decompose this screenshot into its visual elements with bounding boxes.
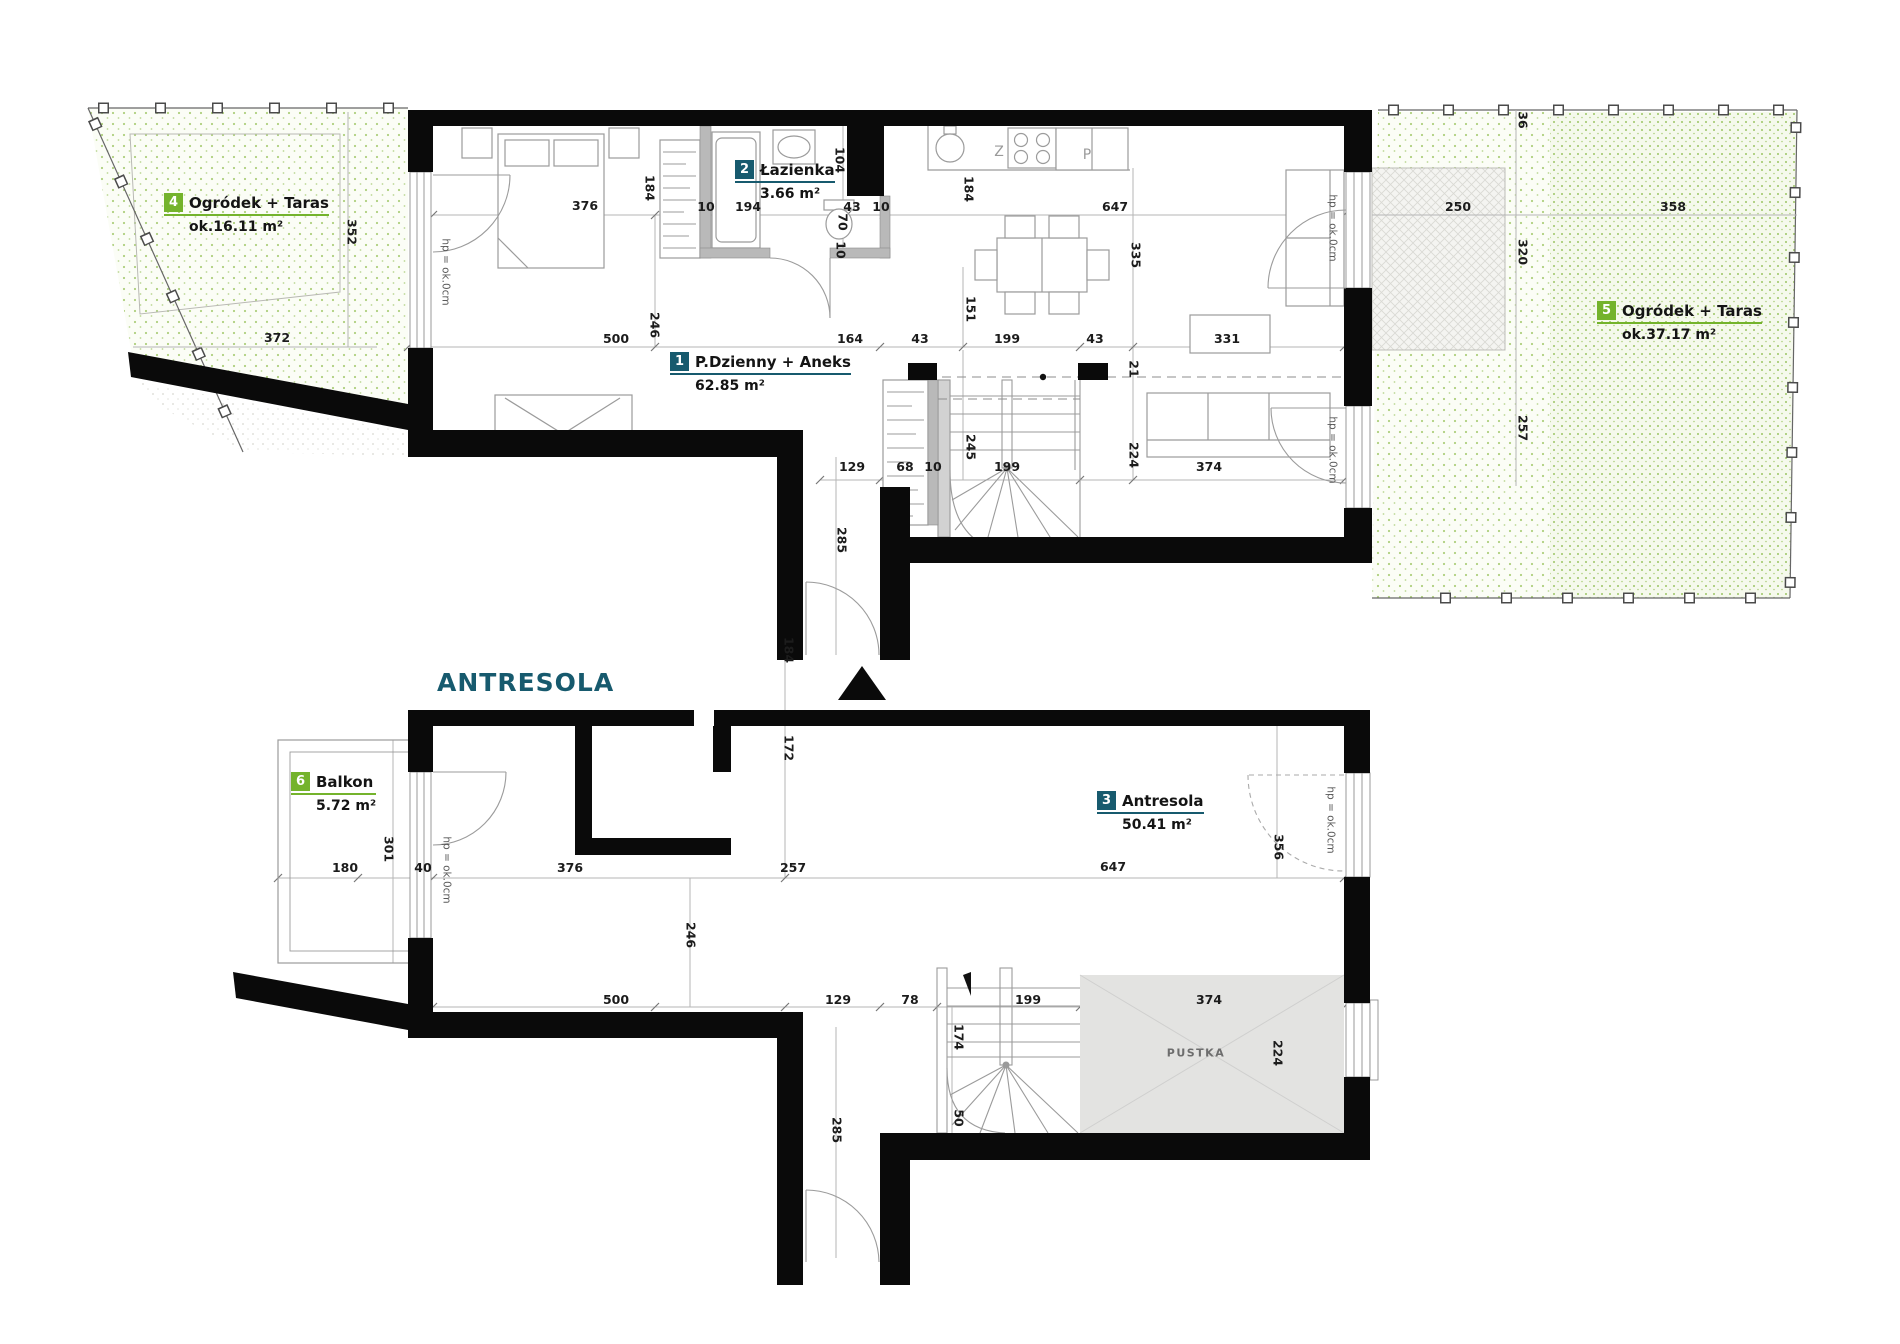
room-badge-name: Łazienka	[760, 161, 835, 179]
room-badge-antresola: 3Antresola 50.41 m²	[1097, 791, 1204, 833]
dim-label: 500	[603, 333, 629, 346]
dim-label: 184	[643, 175, 656, 201]
room-badge-name: P.Dzienny + Aneks	[695, 353, 851, 371]
level-title: ANTRESOLA	[437, 668, 614, 697]
dim-label: 129	[839, 461, 865, 474]
dim-label: 194	[735, 201, 761, 214]
dim-label: 257	[1516, 415, 1529, 441]
dim-label: 70	[836, 213, 849, 230]
dim-label: 257	[780, 862, 806, 875]
dim-label: 356	[1272, 834, 1285, 860]
room-badge-name: Ogródek + Taras	[189, 194, 329, 212]
hp-label: hp = ok.0cm	[1325, 786, 1336, 853]
dim-label: 285	[835, 527, 848, 553]
dim-label: 199	[994, 461, 1020, 474]
dim-label: 151	[964, 296, 977, 322]
dim-label: 374	[1196, 461, 1222, 474]
room-badge-area: ok.16.11 m²	[189, 219, 329, 235]
room-badge-number: 5	[1597, 301, 1616, 320]
dim-label: 78	[901, 994, 918, 1007]
room-badge-number: 2	[735, 160, 754, 179]
room-badge-number: 6	[291, 772, 310, 791]
stairs-lower	[937, 968, 1080, 1133]
dim-label: 10	[872, 201, 889, 214]
appliance-label-p: P	[1083, 148, 1091, 162]
dim-label: 245	[964, 434, 977, 460]
floorplan-page: 4Ogródek + Taras ok.16.11 m² 2Łazienka 3…	[0, 0, 1900, 1344]
dim-label: 184	[782, 637, 795, 663]
dim-label: 68	[896, 461, 913, 474]
dim-label: 43	[843, 201, 860, 214]
dim-label: 199	[1015, 994, 1041, 1007]
room-badge-lazienka: 2Łazienka 3.66 m²	[735, 160, 835, 202]
room-badge-number: 4	[164, 193, 183, 212]
dim-label: 358	[1660, 201, 1686, 214]
room-badge-balkon: 6Balkon 5.72 m²	[291, 772, 376, 814]
dim-label: 43	[1086, 333, 1103, 346]
entrance-arrow-icon	[838, 666, 886, 700]
dim-label: 246	[648, 312, 661, 338]
dim-label: 352	[345, 219, 358, 245]
garden-right	[1372, 112, 1797, 598]
dim-label: 647	[1102, 201, 1128, 214]
room-badge-ogrodek-4: 4Ogródek + Taras ok.16.11 m²	[164, 193, 329, 235]
dim-label: 372	[264, 332, 290, 345]
dim-label: 331	[1214, 333, 1240, 346]
dim-label: 10	[924, 461, 941, 474]
dim-label: 647	[1100, 861, 1126, 874]
room-badge-name: Balkon	[316, 773, 373, 791]
hp-label: hp = ok.0cm	[441, 836, 452, 903]
dim-label: 335	[1129, 242, 1142, 268]
dim-label: 50	[952, 1109, 965, 1126]
dim-label: 104	[833, 147, 846, 173]
hp-label: hp = ok.0cm	[1327, 194, 1338, 261]
room-badge-area: 50.41 m²	[1122, 817, 1204, 833]
room-badge-number: 3	[1097, 791, 1116, 810]
dim-label: 250	[1445, 201, 1471, 214]
dim-label: 36	[1516, 111, 1529, 128]
room-badge-number: 1	[670, 352, 689, 371]
room-badge-area: 62.85 m²	[695, 378, 851, 394]
dim-label: 285	[830, 1117, 843, 1143]
hp-label: hp = ok.0cm	[440, 238, 451, 305]
dim-label: 301	[382, 836, 395, 862]
pustka-label: PUSTKA	[1167, 1047, 1225, 1060]
room-badge-name: Antresola	[1122, 792, 1204, 810]
dim-label: 374	[1196, 994, 1222, 1007]
dim-label: 246	[684, 922, 697, 948]
dim-label: 224	[1127, 442, 1140, 468]
dim-label: 10	[697, 201, 714, 214]
dim-label: 376	[557, 862, 583, 875]
dim-label: 320	[1516, 239, 1529, 265]
appliance-label-z: Z	[994, 145, 1004, 159]
room-badge-area: 5.72 m²	[316, 798, 376, 814]
hp-label: hp = ok.0cm	[1327, 416, 1338, 483]
room-badge-area: 3.66 m²	[760, 186, 835, 202]
dim-label: 164	[837, 333, 863, 346]
dim-label: 224	[1271, 1040, 1284, 1066]
dim-label: 129	[825, 994, 851, 1007]
dim-label: 199	[994, 333, 1020, 346]
room-badge-area: ok.37.17 m²	[1622, 327, 1762, 343]
room-badge-pdzienny: 1P.Dzienny + Aneks 62.85 m²	[670, 352, 851, 394]
dim-label: 180	[332, 862, 358, 875]
dim-label: 376	[572, 200, 598, 213]
dim-label: 184	[962, 176, 975, 202]
dimension-ticks	[274, 211, 1348, 1011]
dim-label: 43	[911, 333, 928, 346]
room-badge-name: Ogródek + Taras	[1622, 302, 1762, 320]
dim-label: 40	[414, 862, 431, 875]
room-badge-ogrodek-5: 5Ogródek + Taras ok.37.17 m²	[1597, 301, 1762, 343]
dim-label: 21	[1127, 360, 1140, 377]
dim-label: 10	[834, 241, 847, 258]
dim-label: 174	[952, 1024, 965, 1050]
dim-label: 500	[603, 994, 629, 1007]
dim-label: 172	[782, 735, 795, 761]
